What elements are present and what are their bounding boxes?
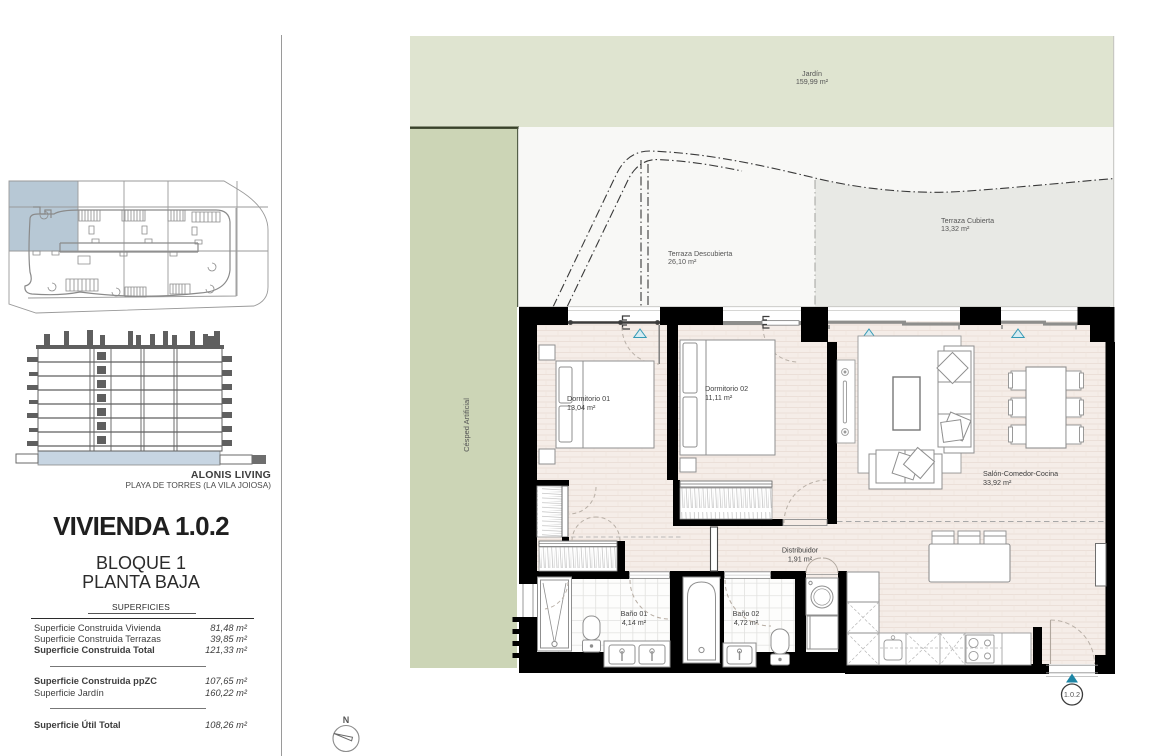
svg-text:1,91 m²: 1,91 m²	[788, 555, 813, 564]
svg-text:Salón-Comedor-Cocina: Salón-Comedor-Cocina	[983, 469, 1058, 478]
svg-text:13,04 m²: 13,04 m²	[567, 403, 596, 412]
svg-text:33,92 m²: 33,92 m²	[983, 478, 1012, 487]
svg-text:Dormitorio 02: Dormitorio 02	[705, 384, 748, 393]
svg-text:1.0.2: 1.0.2	[1064, 690, 1080, 699]
svg-text:159,99 m²: 159,99 m²	[796, 77, 829, 86]
svg-text:Baño 02: Baño 02	[733, 609, 760, 618]
svg-text:Distribuidor: Distribuidor	[782, 546, 819, 555]
svg-text:Césped Artificial: Césped Artificial	[462, 398, 471, 452]
svg-text:4,14 m²: 4,14 m²	[622, 618, 647, 627]
svg-text:N: N	[343, 715, 350, 725]
svg-text:4,72 m²: 4,72 m²	[734, 618, 759, 627]
svg-text:13,32 m²: 13,32 m²	[941, 224, 970, 233]
svg-text:Dormitorio 01: Dormitorio 01	[567, 394, 610, 403]
svg-text:26,10 m²: 26,10 m²	[668, 257, 697, 266]
svg-text:Baño 01: Baño 01	[621, 609, 648, 618]
svg-text:11,11 m²: 11,11 m²	[705, 393, 733, 402]
